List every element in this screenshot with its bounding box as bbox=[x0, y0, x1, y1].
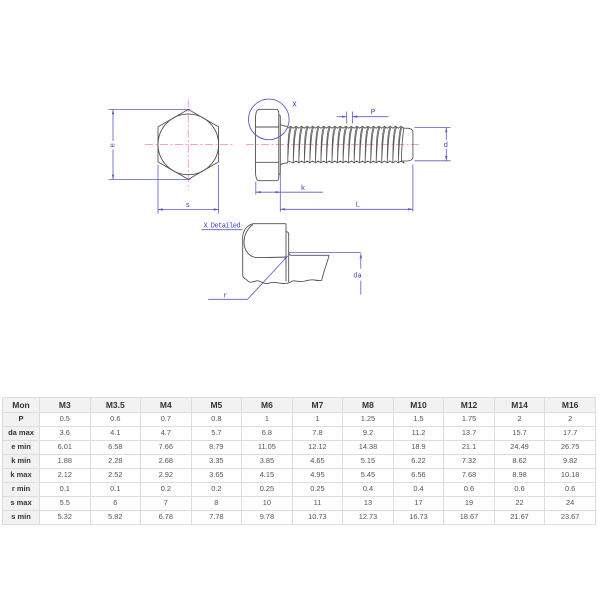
svg-text:e: e bbox=[110, 143, 118, 148]
svg-text:r: r bbox=[223, 293, 227, 301]
svg-text:k: k bbox=[301, 185, 306, 193]
svg-text:X: X bbox=[292, 102, 297, 110]
svg-text:s: s bbox=[186, 202, 191, 210]
svg-text:P: P bbox=[371, 109, 376, 117]
svg-text:L: L bbox=[356, 202, 361, 210]
svg-text:da: da bbox=[353, 273, 361, 281]
svg-text:d: d bbox=[444, 142, 449, 150]
